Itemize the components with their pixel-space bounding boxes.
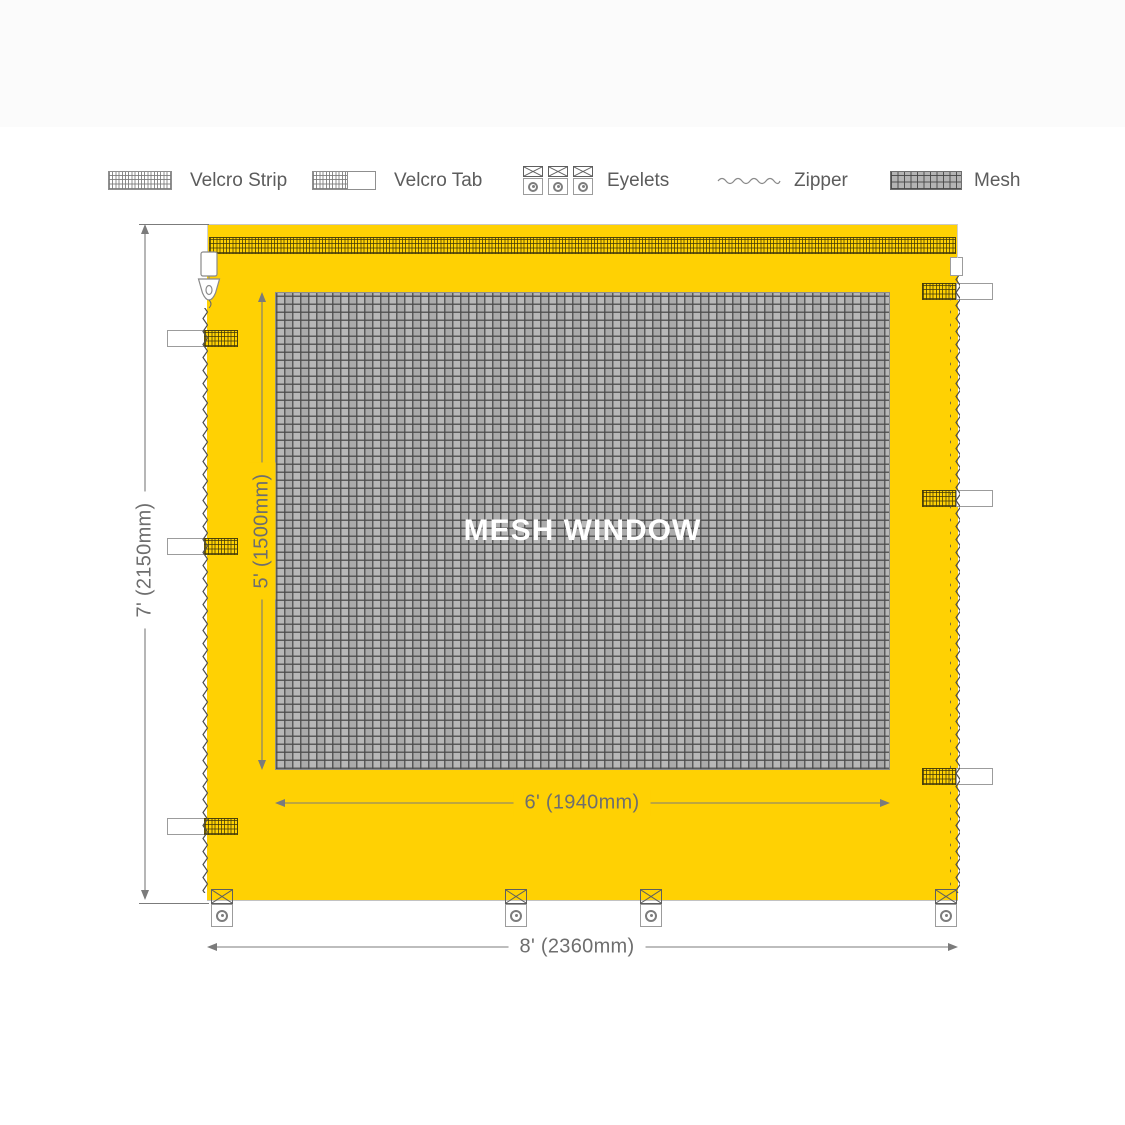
mesh-window: MESH WINDOW xyxy=(275,292,890,770)
sidewall-spec-diagram: Velcro Strip Velcro Tab Eyelets Zipper M… xyxy=(0,0,1125,1125)
velcro-tab xyxy=(167,818,206,835)
dim-label-window-height: 5' (1500mm) xyxy=(249,463,276,600)
velcro-tab-hatch xyxy=(204,818,238,835)
mesh-swatch-icon xyxy=(890,171,962,190)
eyelet xyxy=(211,889,233,927)
dim-label-panel-height: 7' (2150mm) xyxy=(132,492,159,629)
eyelet xyxy=(505,889,527,927)
zipper-stop-icon xyxy=(950,257,963,276)
velcro-tab-swatch-hatch-icon xyxy=(312,171,348,190)
legend-label-velcro-tab: Velcro Tab xyxy=(394,170,482,192)
top-velcro-strip xyxy=(209,237,956,254)
velcro-tab xyxy=(167,330,206,347)
velcro-tab-hatch xyxy=(204,330,238,347)
velcro-tab-hatch xyxy=(922,490,957,507)
legend-label-zipper: Zipper xyxy=(794,170,848,192)
top-background-band xyxy=(0,0,1125,127)
velcro-tab-hatch xyxy=(204,538,238,555)
legend-label-velcro-strip: Velcro Strip xyxy=(190,170,287,192)
velcro-tab-hatch xyxy=(922,768,957,785)
eyelet xyxy=(640,889,662,927)
velcro-strip-swatch-icon xyxy=(108,171,172,190)
velcro-tab xyxy=(956,490,993,507)
velcro-tab xyxy=(167,538,206,555)
legend-label-eyelets: Eyelets xyxy=(607,170,669,192)
eyelet-icon xyxy=(573,166,593,195)
zipper-wave-icon xyxy=(716,174,782,188)
velcro-tab xyxy=(956,768,993,785)
velcro-tab-hatch xyxy=(922,283,957,300)
legend-label-mesh: Mesh xyxy=(974,170,1020,192)
mesh-window-label: MESH WINDOW xyxy=(464,514,702,548)
dim-label-panel-width: 8' (2360mm) xyxy=(509,934,646,961)
eyelet-icon xyxy=(523,166,543,195)
eyelet-icon xyxy=(548,166,568,195)
dim-label-window-width: 6' (1940mm) xyxy=(514,790,651,817)
eyelet xyxy=(935,889,957,927)
velcro-tab xyxy=(956,283,993,300)
